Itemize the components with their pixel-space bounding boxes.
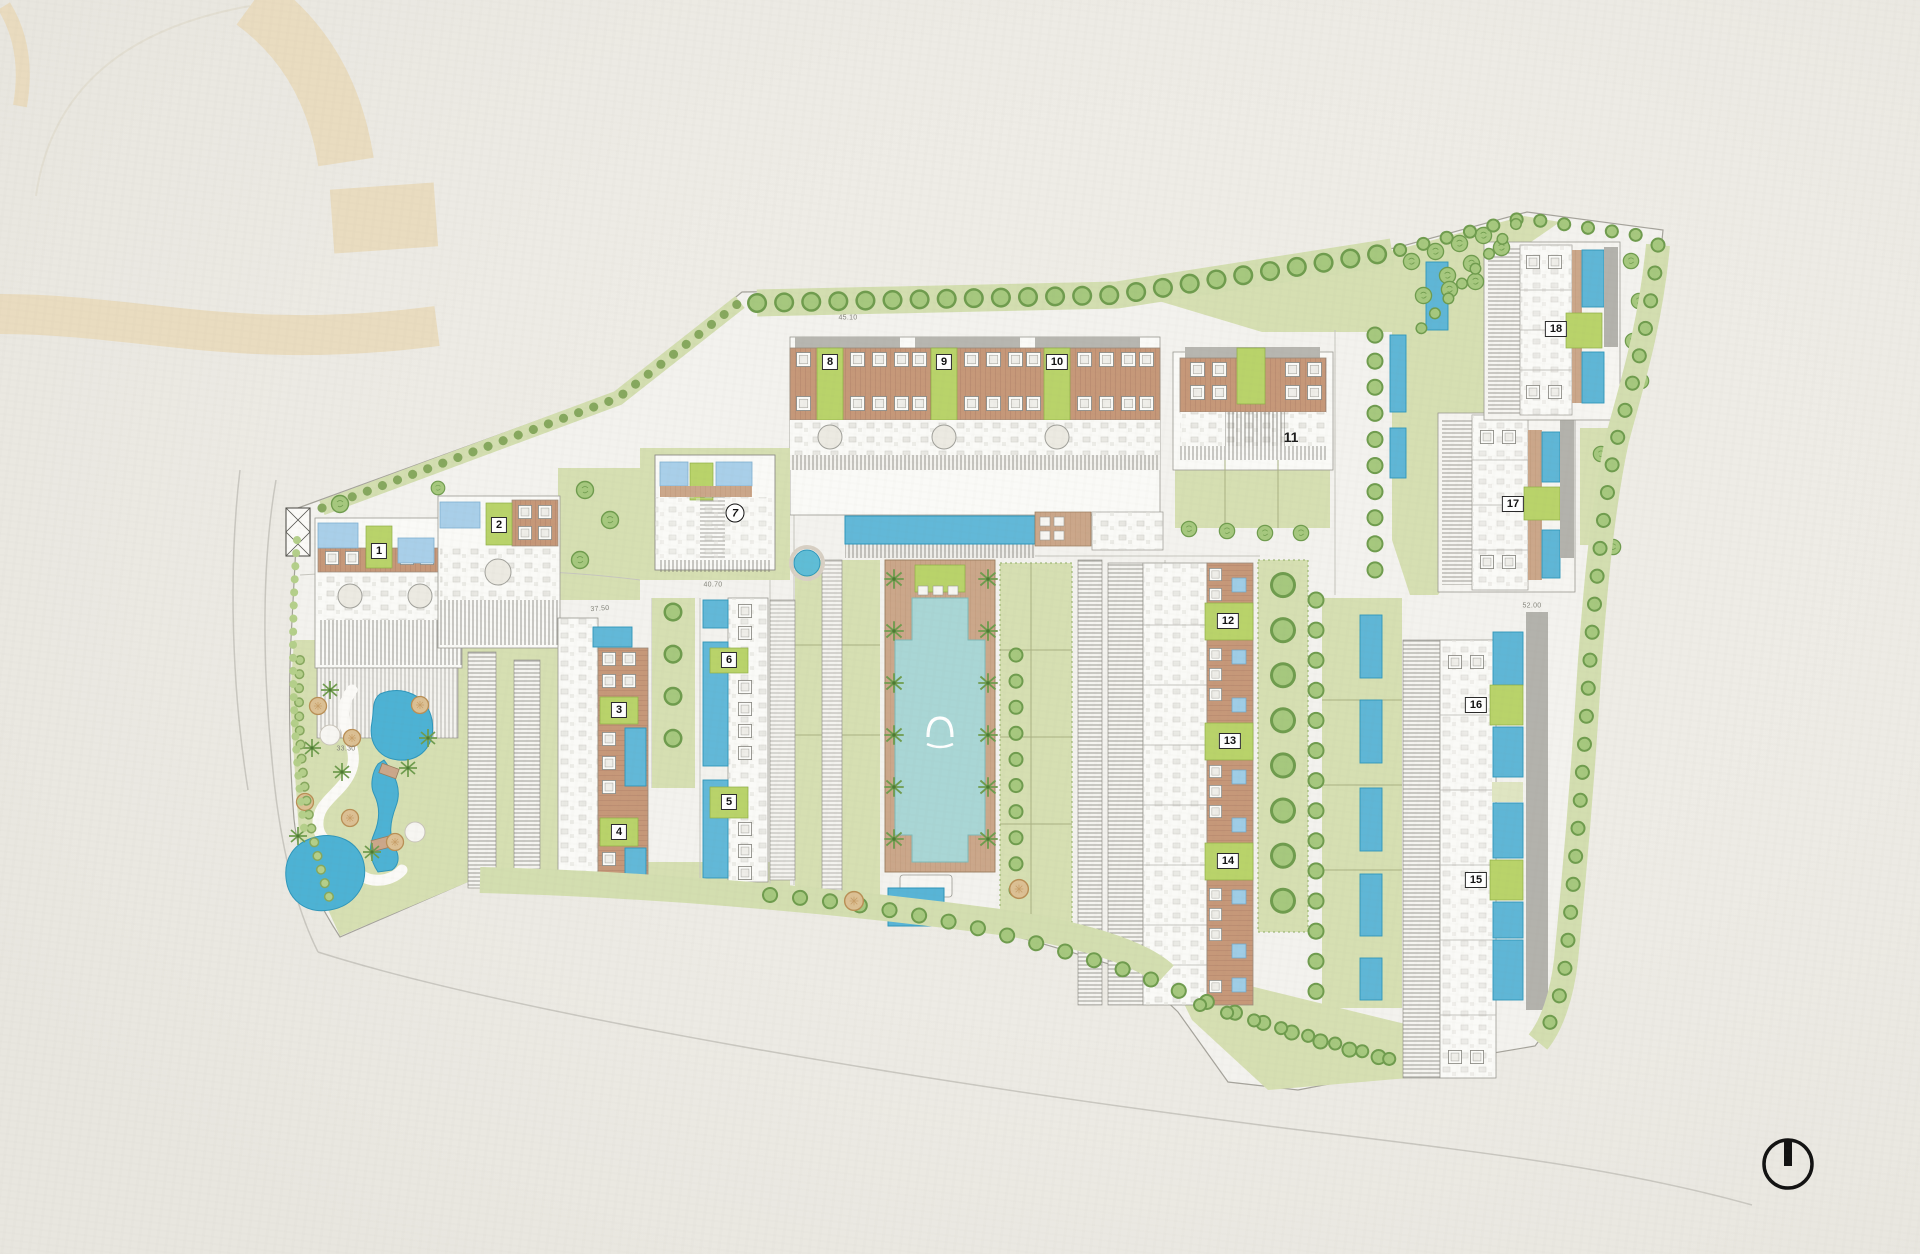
median-garden: [652, 598, 695, 788]
building-label-5: 5: [721, 794, 737, 810]
master-plan-canvas: 1 2 3 4 5 6 7 8 9 10 11 12 13 14 15 16 1…: [0, 0, 1920, 1254]
building-label-18: 18: [1545, 321, 1567, 337]
buildings-8-9-10-row: [790, 337, 1160, 515]
building-label-13: 13: [1219, 733, 1241, 749]
building-label-17: 17: [1502, 496, 1524, 512]
elevation-mark: 52.00: [1522, 603, 1541, 610]
building-label-16: 16: [1465, 697, 1487, 713]
building-label-9: 9: [936, 354, 952, 370]
building-label-12: 12: [1217, 613, 1239, 629]
building-label-8: 8: [822, 354, 838, 370]
building-label-11: 11: [1280, 430, 1303, 444]
building-label-15: 15: [1465, 872, 1487, 888]
entrance-gate: [286, 508, 310, 556]
round-pool: [794, 550, 820, 576]
building-label-1: 1: [371, 543, 387, 559]
building-label-7: 7: [726, 504, 745, 523]
site-plan-drawing: [0, 0, 1920, 1254]
building-label-14: 14: [1217, 853, 1239, 869]
building-label-2: 2: [491, 517, 507, 533]
building-label-10: 10: [1046, 354, 1068, 370]
strip-3-4: [558, 618, 648, 888]
building-label-4: 4: [611, 824, 627, 840]
elevation-mark: 40.70: [703, 582, 722, 589]
building-label-3: 3: [611, 702, 627, 718]
elevation-mark: 45.10: [838, 315, 857, 322]
elevation-mark: 37.50: [590, 605, 609, 613]
elevation-mark: 33.30: [336, 746, 355, 753]
building-label-6: 6: [721, 652, 737, 668]
north-compass-icon: [1760, 1136, 1816, 1192]
lap-pool: [845, 516, 1035, 544]
